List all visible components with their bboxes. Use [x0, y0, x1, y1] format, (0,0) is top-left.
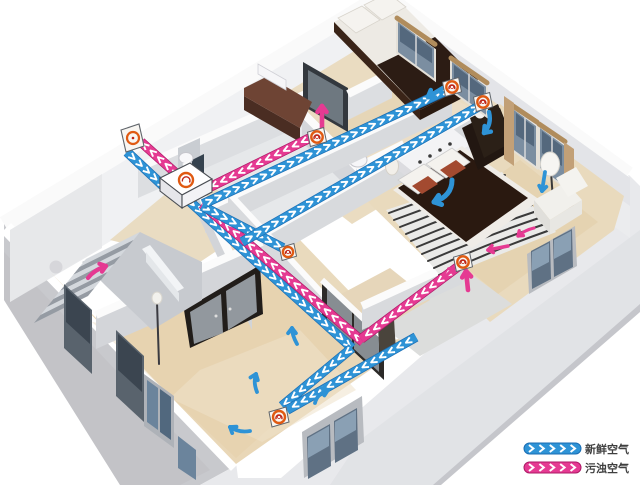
svg-text:新鲜空气: 新鲜空气 — [585, 442, 629, 456]
svg-text:污浊空气: 污浊空气 — [585, 461, 629, 475]
